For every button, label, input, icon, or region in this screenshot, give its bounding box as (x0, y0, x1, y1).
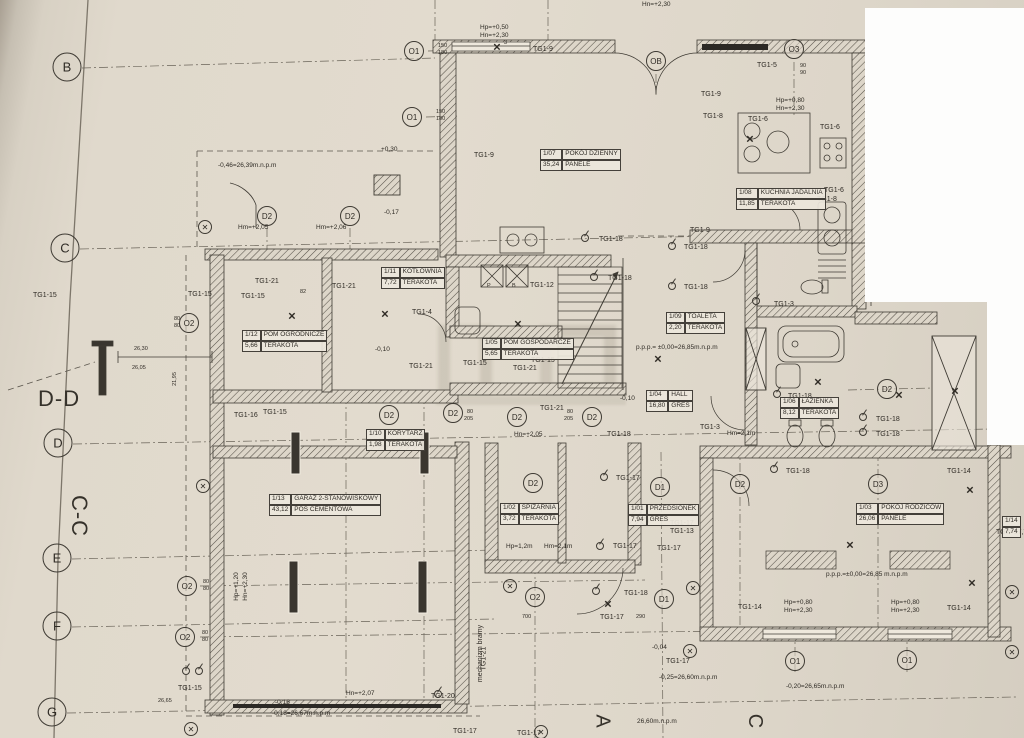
circuit-ref-label: TG1-18 (876, 431, 900, 438)
room-id: 1/12 (242, 330, 261, 341)
circuit-ref-label: TG1-4 (412, 309, 432, 316)
room-area: 11,85 (736, 199, 758, 210)
circuit-ref-label: TG1-18 (876, 416, 900, 423)
dimension-label: B (512, 283, 516, 289)
light-point-mark: ✕ (493, 43, 501, 54)
dimension-label: 150 (438, 43, 447, 49)
circuit-ref-label: TG1-16 (234, 412, 258, 419)
room-label: 1/147,74 (1002, 516, 1021, 538)
room-label: 1/06ŁAZIENKA8,12TERAKOTA (780, 397, 839, 419)
dimension-label: 700 (522, 614, 531, 620)
socket-symbol (182, 667, 190, 675)
dimension-label: 205 (464, 416, 473, 422)
height-label: Hn=+2,07 (346, 690, 375, 697)
room-label: 1/04HALL16,80GRES (646, 390, 693, 412)
room-area: 16,80 (646, 401, 668, 412)
section-label: C-C (66, 495, 92, 537)
section-label: C (743, 714, 766, 729)
dimension-label: 3 (504, 40, 507, 46)
room-id: 1/10 (366, 429, 385, 440)
circuit-ref-label: TG1-21 (540, 405, 564, 412)
height-label: Hp=+1,20 (233, 572, 240, 601)
level-label: -0,04 (652, 644, 667, 651)
room-name: KORYTARZ (385, 429, 426, 440)
room-floor: TERAKOTA (519, 514, 560, 525)
dimension-label: 90 (800, 63, 806, 69)
socket-symbol (581, 234, 589, 242)
room-label: 1/13GARAŻ 2-STANOWISKOWY43,12POS CEMENTO… (269, 494, 381, 516)
grid-marker: G (38, 698, 67, 727)
room-name: GARAŻ 2-STANOWISKOWY (291, 494, 381, 505)
room-area: 35,24 (540, 160, 562, 171)
axis-marker: D1 (654, 589, 674, 609)
dimension-label: 80 (202, 630, 208, 636)
level-label: -0,10 (620, 395, 635, 402)
axis-marker: D2 (257, 206, 277, 226)
circuit-ref-label: TG1-5 (757, 62, 777, 69)
circuit-ref-label: TG1-18 (684, 284, 708, 291)
room-floor: POS CEMENTOWA (291, 505, 381, 516)
room-floor: TERAKOTA (799, 408, 840, 419)
room-label: 1/11KOTŁOWNIA7,72TERAKOTA (381, 267, 445, 289)
axis-marker: D2 (523, 473, 543, 493)
axis-marker: O1 (402, 107, 422, 127)
room-area: 8,12 (780, 408, 799, 419)
circuit-ref-label: TG1-6 (748, 116, 768, 123)
junction-mark: ✕ (184, 722, 198, 736)
grid-marker: C (51, 234, 80, 263)
height-label: Hm=2,1m (727, 430, 755, 437)
dimension-label: 80 (203, 586, 209, 592)
level-label: -0,20=26,65m.n.p.m (786, 683, 844, 690)
room-name: TOALETA (685, 312, 726, 323)
room-floor: PANELE (878, 514, 944, 525)
axis-marker: D2 (507, 407, 527, 427)
junction-mark: ✕ (534, 725, 548, 738)
circuit-ref-label: TG1-21 (332, 283, 356, 290)
room-id: 1/05 (482, 338, 501, 349)
socket-symbol (592, 587, 600, 595)
axis-marker: D2 (443, 403, 463, 423)
circuit-ref-label: TG1-21 (409, 363, 433, 370)
light-point-mark: ✕ (381, 310, 389, 321)
junction-mark: ✕ (503, 579, 517, 593)
socket-symbol (770, 465, 778, 473)
light-point-mark: ✕ (951, 387, 959, 398)
dimension-label: P (487, 283, 491, 289)
dimension-label: 180 (438, 50, 447, 56)
height-label: Hp=1,2m (506, 543, 533, 550)
grid-marker: F (43, 612, 72, 641)
circuit-ref-label: TG1-18 (684, 244, 708, 251)
light-point-mark: ✕ (604, 600, 612, 611)
height-label: Hp=+0,80 (776, 97, 805, 104)
circuit-ref-label: TG1-14 (738, 604, 762, 611)
circuit-ref-label: TG1-12 (530, 282, 554, 289)
light-point-mark: ✕ (966, 486, 974, 497)
circuit-ref-label: TG1-9 (701, 91, 721, 98)
socket-symbol (434, 690, 442, 698)
circuit-ref-label: TG1-18 (786, 468, 810, 475)
room-id: 1/02 (500, 503, 519, 514)
room-floor: GRES (647, 515, 700, 526)
room-label: 1/02SPIŻARNIA3,72TERAKOTA (500, 503, 559, 525)
circuit-ref-label: TG1-17 (600, 614, 624, 621)
room-label: 1/05POM GOSPODARCZE5,65TERAKOTA (482, 338, 574, 360)
dimension-label: 290 (636, 614, 645, 620)
section-label: D-D (38, 386, 80, 412)
axis-marker: D1 (650, 477, 670, 497)
section-label: A (591, 714, 614, 728)
floor-plan: 1/07POKÓJ DZIENNY35,24PANELE1/08KUCHNIA … (0, 0, 1024, 738)
height-label: Hm=+2,05 (238, 224, 268, 231)
room-id: 1/04 (646, 390, 668, 401)
room-name: PRZEDSIONEK (647, 504, 700, 515)
dimension-label: 80 (567, 409, 573, 415)
room-name: POM OGRODNICZE (261, 330, 328, 341)
circuit-ref-label: TG1-15 (178, 685, 202, 692)
circuit-ref-label: TG1-21 (255, 278, 279, 285)
room-floor: GRES (668, 401, 692, 412)
height-label: Hn=+2,30 (480, 32, 509, 39)
dimension-label: 80 (203, 579, 209, 585)
circuit-ref-label: TG1-21 (513, 365, 537, 372)
axis-marker: D2 (582, 407, 602, 427)
room-name: KUCHNIA JADALNIA (758, 188, 826, 199)
junction-mark: ✕ (198, 220, 212, 234)
level-label: -0,25=26,60m.n.p.m (659, 674, 717, 681)
room-id: 1/07 (540, 149, 562, 160)
axis-marker: O2 (175, 627, 195, 647)
room-id: 1/11 (381, 267, 400, 278)
annotation-layer: 1/07POKÓJ DZIENNY35,24PANELE1/08KUCHNIA … (0, 0, 1024, 738)
level-label: -0,46=26,39m.n.p.m (218, 162, 276, 169)
dimension-label: 80 (467, 409, 473, 415)
circuit-ref-label: TG1-18 (599, 236, 623, 243)
level-label: -0,16 (275, 699, 290, 706)
room-label: 1/10KORYTARZ1,98TERAKOTA (366, 429, 425, 451)
height-label: Hn=+2,30 (642, 1, 671, 8)
room-area: 7,74 (1002, 527, 1021, 538)
level-label: +0,30 (381, 146, 397, 153)
dimension-label: 82 (300, 289, 306, 295)
circuit-ref-label: TG1-3 (774, 301, 794, 308)
room-name: POKÓJ DZIENNY (562, 149, 620, 160)
height-label: Hn=+2,05 (514, 431, 543, 438)
room-label: 1/12POM OGRODNICZE5,66TERAKOTA (242, 330, 327, 352)
axis-marker: O2 (179, 313, 199, 333)
room-floor: TERAKOTA (685, 323, 726, 334)
axis-marker: O1 (785, 651, 805, 671)
level-label: p.p.p.= ±0,00=26,85m.n.p.m (636, 344, 718, 351)
light-point-mark: ✕ (814, 378, 822, 389)
room-floor: TERAKOTA (758, 199, 826, 210)
junction-mark: ✕ (1005, 645, 1019, 659)
room-id: 1/09 (666, 312, 685, 323)
room-area: 1,98 (366, 440, 385, 451)
room-label: 1/07POKÓJ DZIENNY35,24PANELE (540, 149, 621, 171)
dimension-label: 90 (800, 70, 806, 76)
circuit-ref-label: TG1-18 (624, 590, 648, 597)
circuit-ref-label: TG1-17 (613, 543, 637, 550)
level-label: -0,17 (384, 209, 399, 216)
room-area: 5,65 (482, 349, 501, 360)
light-point-mark: ✕ (654, 355, 662, 366)
dimension-label: 26,05 (132, 365, 146, 371)
room-label: 1/08KUCHNIA JADALNIA11,85TERAKOTA (736, 188, 826, 210)
height-label: Hn=+2,30 (784, 607, 813, 614)
circuit-ref-label: TG1-15 (33, 292, 57, 299)
axis-marker: D2 (730, 474, 750, 494)
socket-symbol (859, 413, 867, 421)
circuit-ref-label: TG1-15 (263, 409, 287, 416)
axis-marker: D2 (379, 405, 399, 425)
socket-symbol (752, 297, 760, 305)
circuit-ref-label: TG1-15 (463, 360, 487, 367)
axis-marker: D2 (340, 206, 360, 226)
circuit-ref-label: TG1-9 (690, 227, 710, 234)
dimension-label: 80 (174, 316, 180, 322)
height-label: Hp=+0,80 (784, 599, 813, 606)
grid-marker: D (44, 429, 73, 458)
dimension-label: 26,30 (134, 346, 148, 352)
junction-mark: ✕ (196, 479, 210, 493)
room-name: ŁAZIENKA (799, 397, 840, 408)
height-label: Hn=+2,30 (776, 105, 805, 112)
light-point-mark: ✕ (288, 312, 296, 323)
circuit-ref-label: TG1-13 (670, 528, 694, 535)
room-id: 1/13 (269, 494, 291, 505)
junction-mark: ✕ (683, 644, 697, 658)
circuit-ref-label: TG1-17 (657, 545, 681, 552)
room-id: 1/01 (628, 504, 647, 515)
room-area: 43,12 (269, 505, 291, 516)
room-label: 1/01PRZEDSIONEK7,94GRES (628, 504, 699, 526)
room-area: 2,20 (666, 323, 685, 334)
level-label: p.p.p.=±0,00=26,85 m.n.p.m (826, 571, 908, 578)
socket-symbol (859, 428, 867, 436)
dimension-label: 80 (202, 637, 208, 643)
circuit-ref-label: mechanizm bramy (477, 625, 484, 682)
room-label: 1/03POKÓJ RODZICÓW26,06PANELE (856, 503, 944, 525)
circuit-ref-label: TG1-3 (700, 424, 720, 431)
socket-symbol (590, 273, 598, 281)
light-point-mark: ✕ (746, 135, 754, 146)
circuit-ref-label: TG1-17 (666, 658, 690, 665)
socket-symbol (600, 473, 608, 481)
axis-marker: O1 (404, 41, 424, 61)
room-name: POM GOSPODARCZE (501, 338, 574, 349)
room-area: 7,72 (381, 278, 400, 289)
room-floor: TERAKOTA (501, 349, 574, 360)
level-label: 26,60m.n.p.m (637, 718, 677, 725)
circuit-ref-label: TG1-14 (947, 468, 971, 475)
circuit-ref-label: TG1-14 (947, 605, 971, 612)
dimension-label: 150 (436, 109, 445, 115)
socket-symbol (195, 667, 203, 675)
circuit-ref-label: TG1-8 (703, 113, 723, 120)
room-area: 7,94 (628, 515, 647, 526)
dimension-label: 205 (564, 416, 573, 422)
circuit-ref-label: TG1-9 (533, 46, 553, 53)
level-label: -0,10 (375, 346, 390, 353)
room-floor: TERAKOTA (385, 440, 426, 451)
room-id: 1/03 (856, 503, 878, 514)
light-point-mark: ✕ (514, 320, 522, 331)
grid-marker: B (53, 53, 82, 82)
room-name: POKÓJ RODZICÓW (878, 503, 944, 514)
room-id: 1/08 (736, 188, 758, 199)
room-floor: TERAKOTA (261, 341, 328, 352)
grid-marker: E (43, 544, 72, 573)
junction-mark: ✕ (686, 581, 700, 595)
height-label: Hn=+2,30 (242, 572, 249, 601)
dimension-label: 180 (436, 116, 445, 122)
junction-mark: ✕ (1005, 585, 1019, 599)
room-id: 1/06 (780, 397, 799, 408)
height-label: Hm=2,1m (544, 543, 572, 550)
circuit-ref-label: TG1-6 (824, 187, 844, 194)
circuit-ref-label: TG1-6 (820, 124, 840, 131)
height-label: Hn=+2,30 (891, 607, 920, 614)
dimension-label: 26,65 (158, 698, 172, 704)
circuit-ref-label: TG1-17 (453, 728, 477, 735)
room-name: KOTŁOWNIA (400, 267, 445, 278)
room-id: 1/14 (1002, 516, 1021, 527)
circuit-ref-label: TG1-9 (474, 152, 494, 159)
room-floor: TERAKOTA (400, 278, 445, 289)
level-label: -0,18=26,67m.n.p.m (272, 710, 330, 717)
height-label: Hp=+0,50 (480, 24, 509, 31)
light-point-mark: ✕ (846, 541, 854, 552)
axis-marker: O2 (525, 587, 545, 607)
room-floor: PANELE (562, 160, 620, 171)
dimension-label: 80 (174, 323, 180, 329)
room-area: 3,72 (500, 514, 519, 525)
room-label: 1/09TOALETA2,20TERAKOTA (666, 312, 725, 334)
socket-symbol (668, 242, 676, 250)
light-point-mark: ✕ (895, 391, 903, 402)
circuit-ref-label: TG1-18 (607, 431, 631, 438)
circuit-ref-label: TG1-15 (188, 291, 212, 298)
room-name: SPIŻARNIA (519, 503, 560, 514)
circuit-ref-label: TG1-15 (241, 293, 265, 300)
room-area: 5,66 (242, 341, 261, 352)
room-area: 26,06 (856, 514, 878, 525)
axis-marker: OB (646, 51, 666, 71)
dimension-label: 21,95 (172, 372, 178, 386)
axis-marker: O3 (784, 39, 804, 59)
light-point-mark: ✕ (968, 579, 976, 590)
circuit-ref-label: TG1-18 (608, 275, 632, 282)
room-name: HALL (668, 390, 692, 401)
axis-marker: D3 (868, 474, 888, 494)
height-label: Hp=+0,80 (891, 599, 920, 606)
axis-marker: O2 (177, 576, 197, 596)
height-label: Hm=+2,06 (316, 224, 346, 231)
circuit-ref-label: TG1-17 (616, 475, 640, 482)
socket-symbol (668, 282, 676, 290)
socket-symbol (596, 542, 604, 550)
axis-marker: O1 (897, 650, 917, 670)
